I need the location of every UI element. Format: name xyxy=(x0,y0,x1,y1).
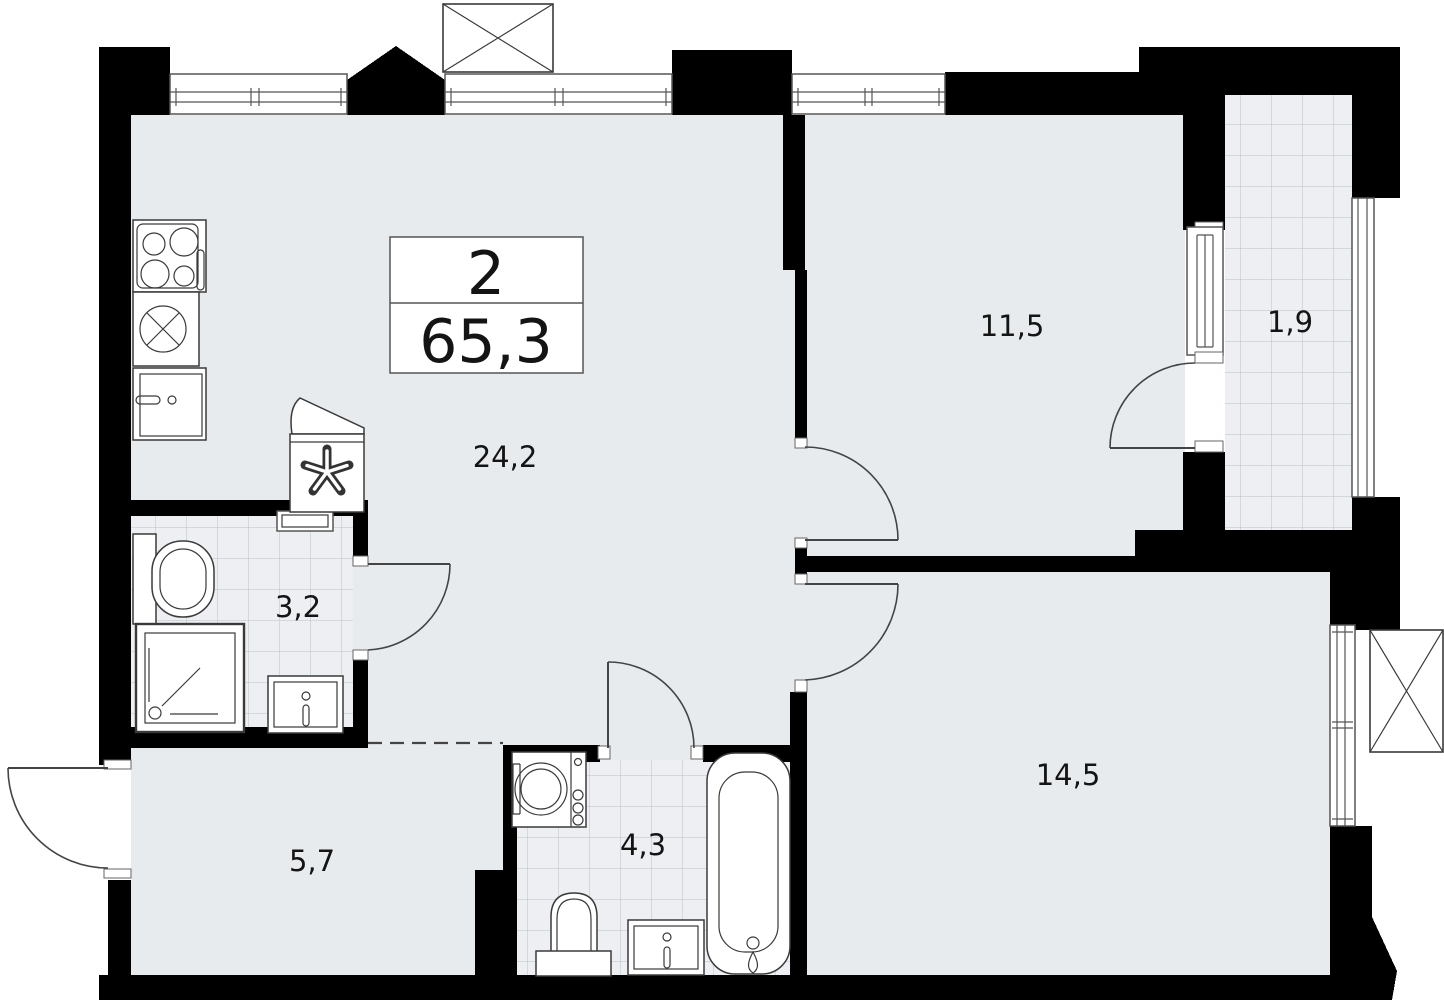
rooms-count: 2 xyxy=(467,239,505,309)
window-living-2 xyxy=(445,74,672,114)
toilet-1 xyxy=(133,534,214,624)
washbasin-1 xyxy=(268,676,343,733)
window-bedroom-2 xyxy=(1330,625,1355,826)
window-bedroom-1 xyxy=(792,74,945,114)
total-area: 65,3 xyxy=(419,307,553,377)
label-balcony: 1,9 xyxy=(1267,305,1313,339)
label-bathroom-1: 3,2 xyxy=(275,590,321,624)
bathtub xyxy=(707,753,790,974)
window-balcony-inner xyxy=(1187,222,1223,355)
label-living-kitchen: 24,2 xyxy=(473,440,538,474)
stove xyxy=(133,220,206,292)
floor-plan-drawing: 2 65,3 24,2 11,5 1,9 3,2 14,5 5,7 4,3 xyxy=(0,0,1444,1000)
bathroom-1-transom xyxy=(277,511,333,531)
kitchen-cabinet xyxy=(133,368,206,440)
ac-unit-top xyxy=(443,4,553,72)
window-living-1 xyxy=(170,74,347,114)
shower-tray xyxy=(136,624,244,732)
washbasin-2 xyxy=(628,920,704,975)
label-bedroom-1: 11,5 xyxy=(980,309,1045,343)
washing-machine xyxy=(512,752,586,827)
label-hallway: 5,7 xyxy=(289,844,335,878)
balcony-glazing xyxy=(1352,198,1374,497)
kitchen-sink xyxy=(133,292,199,366)
label-bedroom-2: 14,5 xyxy=(1036,758,1101,792)
title-block: 2 65,3 xyxy=(390,237,583,377)
ac-unit-right xyxy=(1370,630,1443,752)
floor-plan: 2 65,3 24,2 11,5 1,9 3,2 14,5 5,7 4,3 xyxy=(0,0,1444,1000)
label-bathroom-2: 4,3 xyxy=(620,828,666,862)
